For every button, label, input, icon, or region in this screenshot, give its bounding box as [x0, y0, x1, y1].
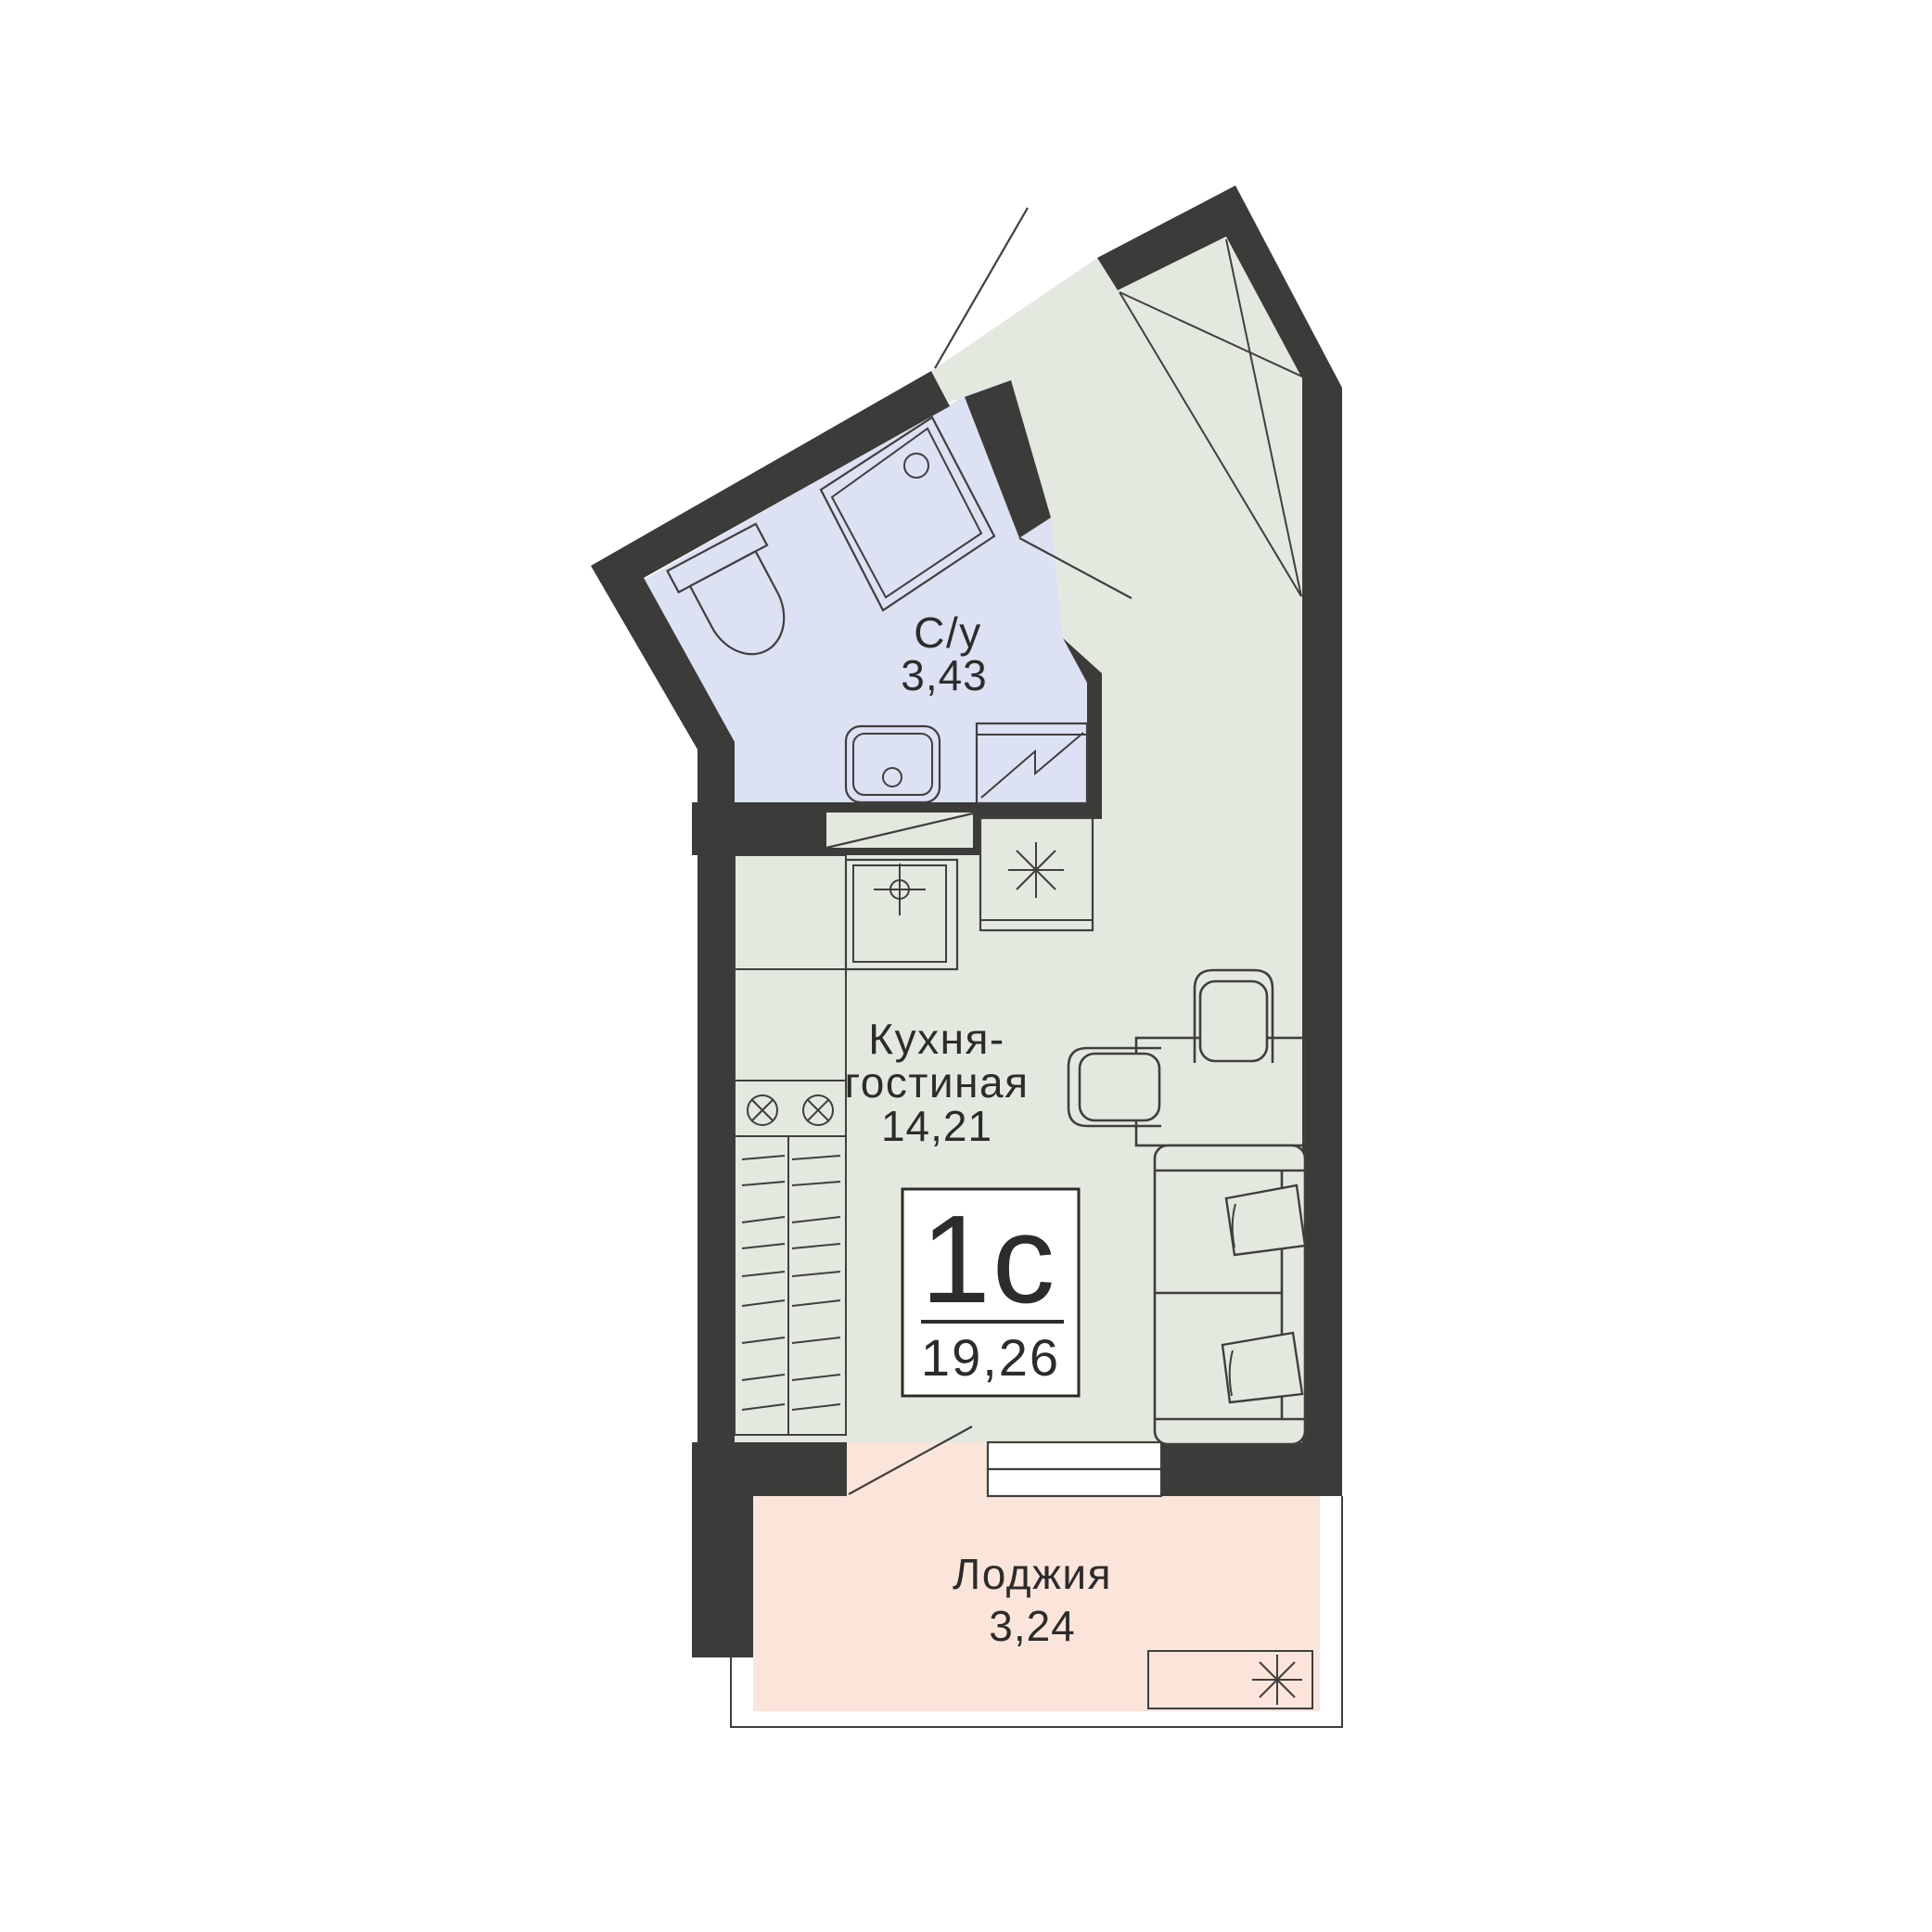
chair-icon-top [1195, 970, 1273, 1063]
pillow-icon [1226, 1185, 1305, 1255]
pillow-icon [1222, 1333, 1302, 1402]
washbasin-icon [846, 726, 940, 802]
floor-plan: С/у 3,43 Кухня- гостиная 14,21 Лоджия 3,… [0, 0, 1932, 1932]
bathroom-area: 3,43 [901, 651, 988, 699]
loggia-area: 3,24 [989, 1602, 1076, 1650]
floor-plan-page: С/у 3,43 Кухня- гостиная 14,21 Лоджия 3,… [0, 0, 1932, 1932]
badge-area-text: 19,26 [921, 1328, 1060, 1387]
bathroom-label: С/у [914, 608, 982, 657]
wall-bottom-left-section [692, 1442, 847, 1496]
balcony-window-inner-sash [988, 1469, 1161, 1496]
kitchen-living-area: 14,21 [881, 1102, 992, 1150]
badge-type-text: 1с [921, 1189, 1057, 1329]
kitchen-living-label-line1: Кухня- [868, 1015, 1004, 1063]
chair-icon-left [1068, 1048, 1161, 1126]
apartment-type-badge: 1с 19,26 [902, 1189, 1079, 1396]
loggia-label: Лоджия [953, 1550, 1112, 1598]
kitchen-threshold [826, 812, 973, 848]
sofa-icon [1155, 1145, 1305, 1444]
balcony-window-outer-sash [988, 1442, 1161, 1469]
kitchen-living-label-line2: гостиная [844, 1058, 1029, 1107]
wall-bathroom-bottom-band-right [980, 802, 1102, 819]
